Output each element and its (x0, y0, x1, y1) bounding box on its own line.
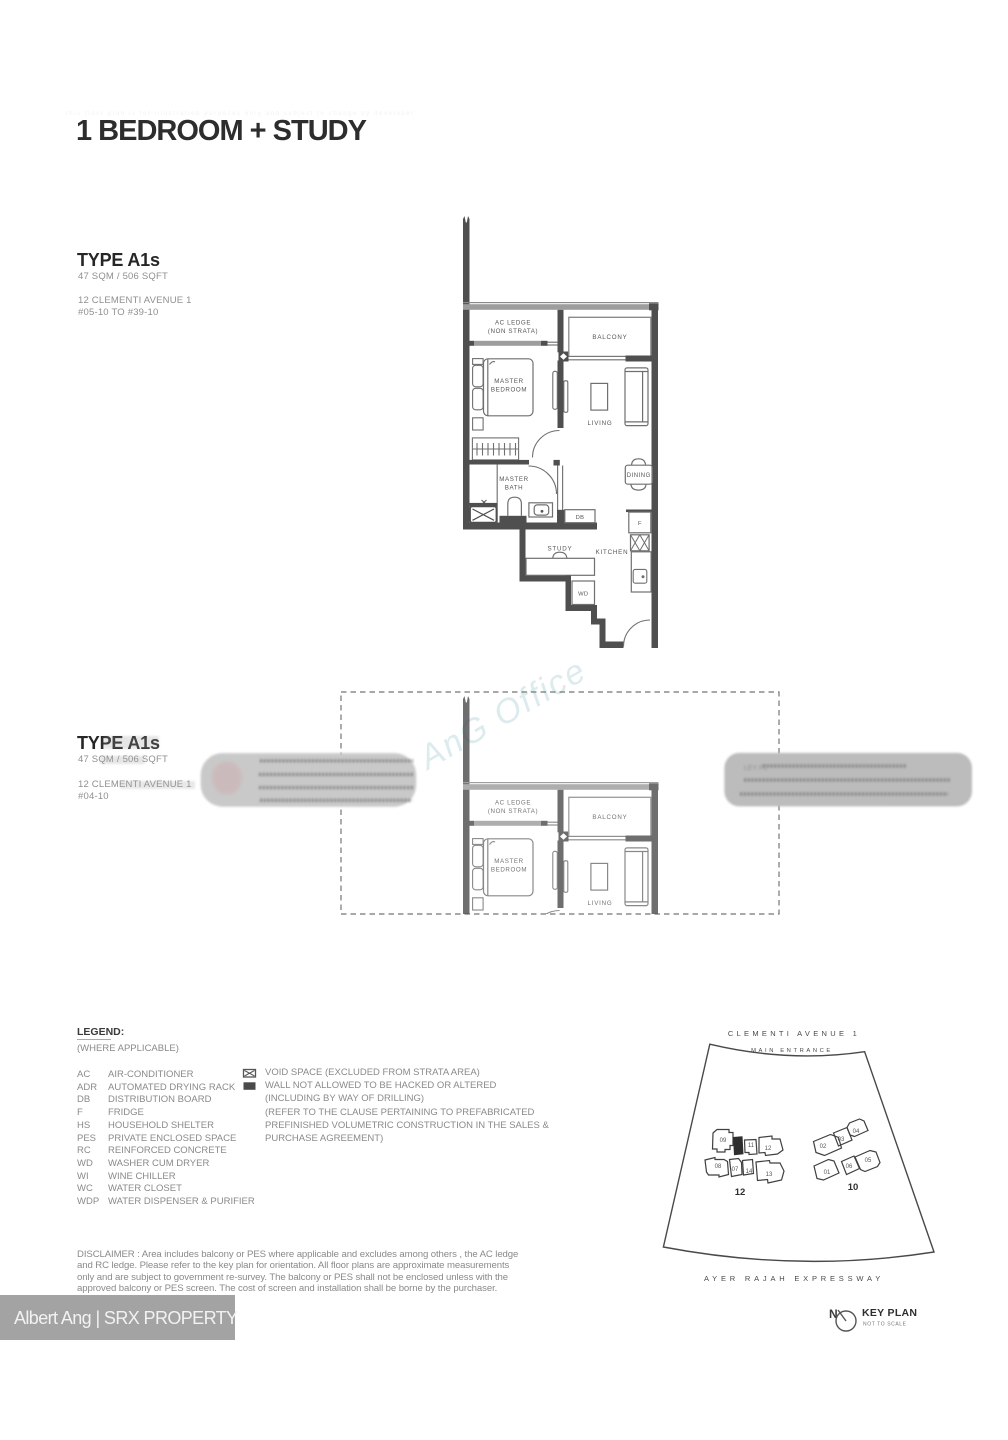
svg-text:AYER RAJAH EXPRESSWAY: AYER RAJAH EXPRESSWAY (704, 1274, 884, 1283)
svg-text:11: 11 (748, 1143, 755, 1149)
svg-text:14: 14 (746, 1169, 753, 1175)
svg-text:08: 08 (715, 1164, 722, 1170)
svg-text:10: 10 (848, 1182, 859, 1193)
svg-text:02: 02 (820, 1144, 827, 1150)
svg-text:05: 05 (865, 1158, 872, 1164)
svg-text:NOT TO SCALE: NOT TO SCALE (863, 1322, 907, 1328)
svg-text:04: 04 (853, 1129, 860, 1135)
svg-text:AnG Office: AnG Office (411, 651, 593, 778)
svg-text:01: 01 (824, 1170, 831, 1176)
svg-text:LEY PL: LEY PL (744, 765, 768, 772)
svg-text:07: 07 (732, 1167, 739, 1173)
svg-text:03: 03 (838, 1137, 845, 1143)
svg-text:12: 12 (765, 1146, 772, 1152)
svg-text:KEY PLAN: KEY PLAN (862, 1307, 917, 1319)
svg-text:13: 13 (766, 1172, 773, 1178)
svg-text:MAIN ENTRANCE: MAIN ENTRANCE (751, 1048, 833, 1054)
svg-text:06: 06 (846, 1164, 853, 1170)
svg-text:09: 09 (720, 1138, 727, 1144)
svg-text:12: 12 (735, 1187, 746, 1198)
svg-text:CLEMENTI AVENUE 1: CLEMENTI AVENUE 1 (728, 1029, 860, 1038)
